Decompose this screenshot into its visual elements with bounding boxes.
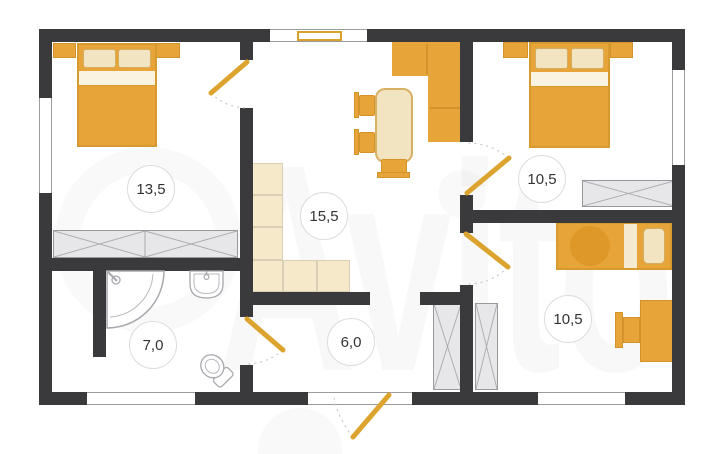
- chair-seat: [359, 95, 375, 116]
- bed-blanket: [79, 85, 155, 145]
- wall-bathroom-stub: [240, 365, 253, 392]
- wall-bedroom1-stub: [240, 42, 253, 60]
- room-area-label-bathroom: 7,0: [129, 321, 177, 369]
- wardrobe: [53, 230, 238, 258]
- room-area-label-bedroom3: 10,5: [544, 295, 592, 343]
- chair-seat: [381, 159, 407, 173]
- nightstand: [156, 43, 180, 58]
- kitchen-cabinet: [252, 260, 283, 292]
- wall-bedroom2-bedroom3: [473, 210, 672, 223]
- kitchen-cabinet: [252, 195, 283, 227]
- window-bedroom3: [538, 392, 625, 405]
- window-living-marker: [297, 31, 342, 41]
- wall-left-lower: [39, 193, 52, 405]
- kitchen-cabinet: [252, 163, 283, 195]
- bed-pillow: [643, 228, 665, 264]
- single-bed: [556, 222, 672, 270]
- bed-headboard: [79, 45, 155, 71]
- wardrobe: [582, 180, 675, 207]
- wall-living-hallway: [253, 292, 370, 305]
- wall-bottom-1: [39, 392, 87, 405]
- window-bathroom: [87, 392, 195, 405]
- wall-bedroom1-living: [240, 108, 253, 317]
- bed-blanket: [558, 224, 624, 268]
- desk-chair-seat: [623, 317, 640, 343]
- entrance-opening: [308, 392, 412, 405]
- wall-top-left: [39, 29, 270, 42]
- wall-bedroom1-bathroom: [39, 258, 253, 271]
- bed-headboard: [531, 44, 608, 72]
- wall-bottom-2: [195, 392, 308, 405]
- room-area-label-hallway: 6,0: [327, 318, 375, 366]
- bed-blanket: [531, 86, 608, 146]
- bed-sheet: [624, 224, 637, 268]
- kitchen-cabinet: [252, 227, 283, 260]
- wall-hallway-bedroom3: [460, 285, 473, 392]
- window-bedroom2: [672, 70, 685, 165]
- sofa-cushion-seam: [430, 107, 460, 109]
- room-area-label-living: 15,5: [300, 192, 348, 240]
- wall-right-lower: [672, 165, 685, 405]
- room-area-label-bedroom1: 13,5: [127, 165, 175, 213]
- nightstand: [610, 42, 633, 58]
- bed-sheet: [531, 72, 608, 86]
- bed-sheet: [79, 71, 155, 85]
- wall-bottom-3: [412, 392, 538, 405]
- wall-left-upper: [39, 29, 52, 98]
- dining-table: [375, 88, 413, 163]
- bed-pillow: [83, 49, 116, 68]
- room-area-label-bedroom2: 10,5: [518, 155, 566, 203]
- double-bed: [529, 42, 610, 148]
- closet: [475, 303, 498, 390]
- sofa-cushion-seam: [426, 44, 428, 74]
- kitchen-cabinet: [283, 260, 317, 292]
- double-bed: [77, 43, 157, 147]
- chair-back: [377, 172, 410, 178]
- kitchen-cabinet: [317, 260, 350, 292]
- wall-bathroom-partition: [93, 271, 106, 357]
- wall-top-right: [367, 29, 685, 42]
- nightstand: [503, 42, 528, 58]
- wall-bottom-4: [625, 392, 685, 405]
- closet: [433, 303, 462, 390]
- wall-right-upper: [672, 29, 685, 70]
- bed-cushion: [570, 226, 610, 266]
- floor-plan: Avito: [0, 0, 720, 454]
- bed-pillow: [118, 49, 151, 68]
- desk: [640, 300, 674, 362]
- nightstand: [53, 43, 76, 58]
- window-bedroom1: [39, 98, 52, 193]
- wall-living-bedroom2-mid: [460, 195, 473, 233]
- bed-pillow: [535, 48, 568, 69]
- bed-pillow: [571, 48, 604, 69]
- wall-living-bedroom2-upper: [460, 42, 473, 142]
- chair-seat: [359, 132, 375, 153]
- bed-headboard: [637, 224, 670, 268]
- desk-chair-back: [615, 312, 623, 348]
